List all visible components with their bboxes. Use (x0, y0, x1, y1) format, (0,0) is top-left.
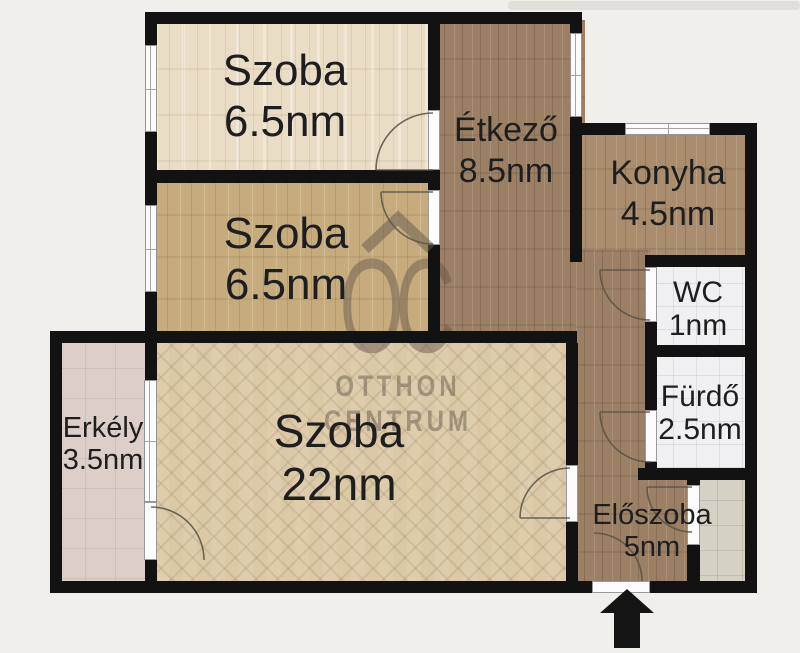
room-label-erkely: Erkély 3.5nm (63, 412, 144, 477)
room-area: 5nm (592, 531, 711, 563)
room-name: Fürdő (658, 380, 741, 413)
room-area: 4.5nm (610, 194, 725, 235)
room-label-wc: WC 1nm (669, 276, 727, 342)
wall-konyha-left (570, 135, 582, 262)
room-label-furdo: Fürdő 2.5nm (658, 380, 741, 446)
door-frame-nagyszoba (566, 465, 578, 522)
entrance-arrow-shaft (614, 612, 640, 648)
wall-bath-left (645, 322, 657, 410)
watermark-brand-line1: OTTHON (335, 370, 460, 404)
wall-rooms-right-b (428, 170, 440, 190)
window-szoba1 (145, 45, 157, 132)
floor-plan: OC OTTHON CENTRUM (0, 0, 800, 653)
wall-pantry-left-a (687, 478, 700, 485)
entrance-arrow-head (600, 589, 654, 613)
wall-erkely-left (50, 343, 62, 581)
wall-rooms-right-c (428, 245, 440, 331)
room-label-szoba2: Szoba 6.5nm (224, 208, 349, 310)
wall-top (145, 12, 582, 24)
wall-szoba-divider (157, 170, 440, 183)
room-area: 8.5nm (454, 151, 558, 192)
top-shadow-band (508, 1, 800, 10)
room-name: Étkező (454, 110, 558, 151)
room-area: 22nm (274, 458, 404, 511)
room-label-konyha: Konyha 4.5nm (610, 153, 725, 235)
wall-right-outer (745, 123, 757, 593)
wall-nagyszoba-right-b (566, 522, 578, 583)
room-name: Erkély (63, 412, 144, 444)
wall-erkely-top (50, 331, 157, 343)
room-name: Szoba (274, 405, 404, 458)
room-area: 6.5nm (224, 259, 349, 310)
room-area: 6.5nm (223, 96, 348, 147)
window-etkezo (570, 33, 582, 117)
door-frame-szoba2 (428, 190, 440, 245)
room-label-nagyszoba: Szoba 22nm (274, 405, 404, 512)
room-name: WC (669, 276, 727, 309)
window-szoba2 (145, 205, 157, 292)
room-area: 1nm (669, 309, 727, 342)
room-label-etkezo: Étkező 8.5nm (454, 110, 558, 192)
wall-nagyszoba-right-a (566, 343, 578, 465)
room-name: Konyha (610, 153, 725, 194)
window-konyha (625, 123, 710, 135)
wall-wc-top (645, 255, 745, 267)
wall-wc-furdo-divider (645, 345, 745, 357)
room-label-szoba1: Szoba 6.5nm (223, 45, 348, 147)
door-frame-wc (645, 267, 657, 322)
door-frame-szoba1 (428, 110, 440, 170)
wall-szoba2-nagyszoba (145, 331, 577, 343)
room-name: Előszoba (592, 499, 711, 531)
room-name: Szoba (224, 208, 349, 259)
room-area: 3.5nm (63, 444, 144, 476)
room-label-eloszoba: Előszoba 5nm (592, 499, 711, 564)
door-frame-erkely (144, 502, 157, 560)
room-area: 2.5nm (658, 413, 741, 446)
window-erkely (144, 380, 157, 502)
wall-rooms-right-a (428, 24, 440, 110)
room-name: Szoba (223, 45, 348, 96)
door-frame-furdo (645, 410, 657, 462)
